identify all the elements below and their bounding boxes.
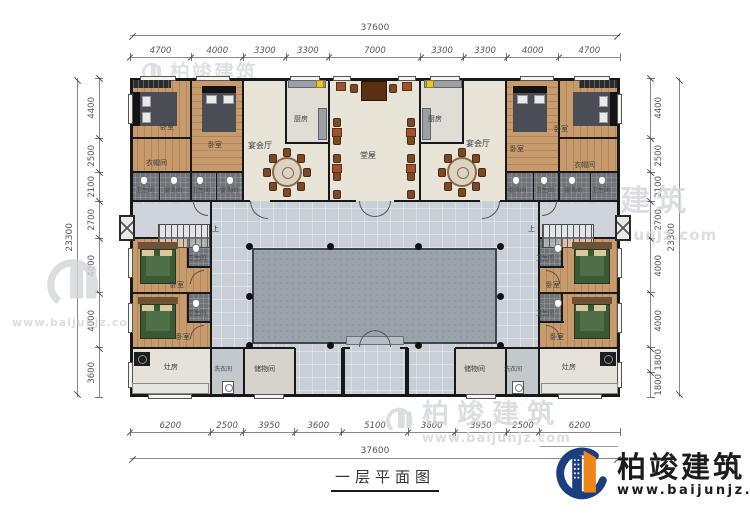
- dim-right-total-value: 23300: [667, 223, 677, 252]
- pillow: [599, 96, 608, 107]
- dining-chair: [269, 154, 277, 163]
- dim-segment-value: 6200: [160, 421, 182, 431]
- stove-counter: [541, 383, 618, 394]
- label-bedroom: 卧室: [170, 282, 184, 289]
- bed-headboard: [138, 297, 178, 304]
- dim-segment: 4000: [84, 293, 99, 348]
- dining-chair: [478, 168, 486, 177]
- toilet: [196, 176, 204, 185]
- pillow: [160, 250, 172, 256]
- hall-chair: [389, 84, 397, 93]
- toilet: [598, 176, 606, 185]
- hall-chair: [407, 136, 415, 145]
- floor-plan-sheet: 37600 4700400033003300700033003300400047…: [0, 0, 750, 530]
- label-bathroom: 卫生间: [192, 188, 210, 194]
- dim-segment-value: 4400: [654, 97, 664, 119]
- dining-chair: [458, 188, 466, 197]
- dining-chair: [438, 168, 446, 177]
- dim-segment-value: 7000: [364, 46, 386, 56]
- column-dot: [497, 342, 504, 349]
- dim-bottom-total-value: 37600: [361, 446, 390, 456]
- bed-headboard: [133, 92, 140, 126]
- hall-chair: [333, 154, 341, 163]
- wall: [533, 172, 534, 201]
- label-washroom: 盥洗间: [164, 188, 182, 194]
- dim-segment-value: 2100: [87, 176, 97, 198]
- label-bathroom: 卫生间: [136, 188, 154, 194]
- label-bedroom: 卧室: [160, 124, 174, 131]
- label-bathroom: 卫生间: [592, 188, 610, 194]
- dim-segment-value: 3300: [297, 46, 319, 56]
- label-bedroom: 卧室: [510, 146, 524, 153]
- wall: [130, 137, 191, 139]
- label-washroom: 盥洗间: [564, 188, 582, 194]
- wall: [285, 78, 287, 143]
- wall: [130, 292, 211, 294]
- dim-segment: 3950: [455, 415, 506, 432]
- wall: [454, 348, 456, 397]
- dim-segment-value: 4000: [87, 255, 97, 277]
- wall: [294, 348, 296, 397]
- pillow: [534, 95, 545, 104]
- column-dot: [246, 342, 253, 349]
- dining-chair: [269, 182, 277, 191]
- window-symbol: [617, 248, 622, 278]
- wall: [539, 266, 564, 268]
- bed: [513, 86, 547, 132]
- pillow: [206, 95, 217, 104]
- label-bathroom: 卫生间: [536, 311, 554, 317]
- dim-segment: 6200: [539, 415, 620, 432]
- window-symbol: [333, 76, 351, 81]
- dining-chair: [283, 148, 291, 157]
- dim-segment-value: 1800: [654, 374, 664, 396]
- dim-segment-value: 2500: [216, 421, 238, 431]
- label-stove-room: 灶房: [562, 364, 576, 371]
- label-stove-room: 灶房: [164, 364, 178, 371]
- wall: [216, 172, 217, 201]
- label-bedroom: 卧室: [176, 334, 190, 341]
- brand-logo: 柏竣建筑 www.baijunjz.com: [553, 447, 750, 503]
- pillow: [142, 305, 154, 311]
- pillow: [594, 250, 606, 256]
- wall: [590, 172, 591, 201]
- window-symbol: [617, 303, 622, 333]
- door-arc: [250, 201, 268, 219]
- sink-item: [426, 80, 434, 88]
- dim-segment: 2500: [507, 415, 540, 432]
- dim-right-total: 23300: [664, 78, 680, 397]
- dining-chair: [297, 154, 305, 163]
- pillow: [142, 250, 154, 256]
- dim-top-total-value: 37600: [361, 23, 390, 33]
- wall: [539, 321, 564, 323]
- toilet: [226, 176, 234, 185]
- toilet: [512, 176, 520, 185]
- pillow: [160, 305, 172, 311]
- window-symbol: [128, 303, 133, 333]
- wall: [242, 78, 244, 201]
- dim-segment: 2100: [84, 172, 99, 201]
- brand-url: www.baijunjz.com: [617, 483, 750, 498]
- dim-segment-value: 6200: [569, 421, 591, 431]
- toilet: [140, 176, 148, 185]
- pillow: [142, 96, 151, 107]
- wall: [538, 348, 540, 397]
- label-storage: 储物间: [254, 366, 275, 373]
- dim-segment-value: 1800: [654, 349, 664, 371]
- hall-chair: [333, 190, 341, 199]
- brand-name: 柏竣建筑: [617, 452, 750, 482]
- wall: [243, 348, 245, 397]
- bed: [202, 86, 236, 132]
- label-storage: 储物间: [464, 366, 485, 373]
- wall: [270, 200, 356, 202]
- dining-chair: [263, 168, 271, 177]
- label-bathroom: 卫生间: [188, 311, 206, 317]
- dim-segment: 4400: [84, 78, 99, 138]
- wall: [130, 347, 295, 349]
- bed-duvet-inner: [580, 256, 604, 276]
- dim-segment: 3300: [421, 40, 464, 57]
- pillow: [223, 95, 234, 104]
- dim-segment-value: 3950: [470, 421, 492, 431]
- dim-left-total-value: 23300: [65, 223, 75, 252]
- dim-segment-value: 2500: [87, 145, 97, 167]
- drawing-title: 一层平面图: [310, 466, 460, 487]
- hall-chair: [333, 136, 341, 145]
- column-dot: [246, 243, 253, 250]
- dining-chair: [297, 182, 305, 191]
- dim-segment: 2500: [84, 138, 99, 172]
- wall: [130, 200, 250, 202]
- bed-headboard: [610, 92, 617, 126]
- hall-side-table: [406, 128, 416, 137]
- wall: [187, 266, 212, 268]
- wall: [210, 348, 212, 397]
- door-arc: [482, 201, 500, 219]
- bed: [133, 92, 177, 126]
- dining-chair: [283, 188, 291, 197]
- dim-segment: 3600: [408, 415, 455, 432]
- dim-segment: 4000: [191, 40, 243, 57]
- label-washroom: 盥洗间: [508, 188, 526, 194]
- dim-segment-value: 4400: [87, 97, 97, 119]
- wall: [419, 78, 421, 201]
- dim-segment: 3300: [243, 40, 286, 57]
- dim-segment: 3300: [286, 40, 329, 57]
- column-dot: [327, 342, 334, 349]
- dim-segment-value: 4700: [150, 46, 172, 56]
- wall: [159, 172, 160, 201]
- dim-segment-value: 2500: [654, 145, 664, 167]
- stove: [600, 352, 616, 366]
- bed: [138, 242, 178, 286]
- window-symbol: [466, 394, 496, 399]
- altar-table: [361, 81, 387, 101]
- window-symbol: [520, 76, 554, 81]
- kitchen-counter: [318, 108, 327, 140]
- window-symbol: [128, 248, 133, 278]
- label-banquet-hall: 宴会厅: [466, 140, 490, 148]
- pillow: [594, 305, 606, 311]
- wall: [394, 200, 480, 202]
- dim-segment-value: 4000: [522, 46, 544, 56]
- dim-segment: 4000: [507, 40, 559, 57]
- washing-machine: [222, 381, 234, 394]
- hall-side-table: [332, 164, 342, 173]
- dim-segment-value: 2700: [87, 209, 97, 231]
- flue-symbol: [119, 215, 135, 241]
- window-symbol: [148, 394, 192, 399]
- hall-chair: [407, 118, 415, 127]
- washing-machine: [512, 381, 524, 394]
- dim-segment-value: 4000: [87, 310, 97, 332]
- wall: [341, 348, 345, 397]
- wall: [462, 78, 464, 143]
- dining-chair: [472, 182, 480, 191]
- dim-segment: 5100: [342, 415, 408, 432]
- bed: [138, 297, 178, 341]
- hall-side-table: [406, 164, 416, 173]
- dim-segment-value: 3300: [254, 46, 276, 56]
- dining-chair: [458, 148, 466, 157]
- column-dot: [327, 243, 334, 250]
- label-stairs-up: 上: [528, 226, 535, 233]
- hall-side-table: [336, 82, 346, 91]
- wall: [538, 201, 540, 348]
- toilet: [554, 299, 562, 308]
- wardrobe: [579, 80, 617, 88]
- wall: [506, 171, 620, 173]
- label-kitchen: 厨房: [294, 116, 308, 123]
- wall: [285, 142, 330, 144]
- dim-segment-value: 2500: [512, 421, 534, 431]
- dim-segment-value: 4000: [654, 255, 664, 277]
- label-main-hall: 堂屋: [360, 152, 376, 160]
- hall-side-table: [402, 82, 412, 91]
- label-banquet-hall: 宴会厅: [248, 142, 272, 150]
- wall: [187, 321, 212, 323]
- bed-duvet-inner: [146, 311, 170, 331]
- wall: [500, 200, 620, 202]
- dim-segment-value: 5100: [364, 421, 386, 431]
- bed-headboard: [202, 86, 236, 93]
- label-cloakroom: 衣帽间: [574, 162, 595, 169]
- pillow: [142, 112, 151, 123]
- toilet: [192, 299, 200, 308]
- hall-chair: [407, 154, 415, 163]
- bed-duvet-inner: [580, 311, 604, 331]
- label-bedroom: 卧室: [208, 142, 222, 149]
- window-symbol: [196, 76, 230, 81]
- dim-bottom-segments: 620025003950360051003600395025006200: [130, 415, 620, 433]
- label-bedroom: 卧室: [554, 126, 568, 133]
- dim-segment: 3950: [243, 415, 294, 432]
- dim-segment: 3600: [84, 348, 99, 397]
- brand-text: 柏竣建筑 www.baijunjz.com: [617, 452, 750, 497]
- wall: [561, 293, 563, 323]
- dim-segment-value: 4000: [654, 310, 664, 332]
- door-arc: [359, 201, 375, 217]
- dim-segment: 4700: [559, 40, 620, 57]
- hall-chair: [333, 172, 341, 181]
- dim-segment: 3300: [464, 40, 507, 57]
- dining-chair: [444, 182, 452, 191]
- dim-left-segments: 4400250021002700400040003600: [84, 78, 100, 397]
- wardrobe: [133, 80, 171, 88]
- bed: [573, 92, 617, 126]
- stove: [134, 352, 150, 366]
- label-laundry: 洗衣间: [214, 367, 232, 373]
- label-kitchen: 厨房: [428, 116, 442, 123]
- wall: [130, 394, 620, 397]
- label-bedroom: 卧室: [546, 282, 560, 289]
- column-dot: [246, 293, 253, 300]
- bed-headboard: [572, 242, 612, 249]
- dim-segment: 4700: [130, 40, 191, 57]
- dining-chair: [444, 154, 452, 163]
- pillow: [599, 112, 608, 123]
- dim-segment: 6200: [130, 415, 211, 432]
- label-washroom: 盥洗间: [220, 188, 238, 194]
- dim-segment-value: 4700: [579, 46, 601, 56]
- dim-segment-value: 3600: [421, 421, 443, 431]
- label-laundry: 洗衣间: [504, 367, 522, 373]
- label-bedroom: 卧室: [550, 334, 564, 341]
- sink-item: [316, 80, 324, 88]
- stove-counter: [132, 383, 209, 394]
- column-dot: [415, 243, 422, 250]
- toilet: [170, 176, 178, 185]
- column-dot: [497, 293, 504, 300]
- bed: [572, 242, 612, 286]
- dim-segment-value: 2700: [654, 209, 664, 231]
- pillow: [517, 95, 528, 104]
- hall-chair: [350, 84, 358, 93]
- bed-headboard: [513, 86, 547, 93]
- wall: [505, 78, 507, 201]
- title-underline: [331, 490, 439, 492]
- label-bathroom: 卫生间: [536, 256, 554, 262]
- hall-side-table: [332, 128, 342, 137]
- dim-segment-value: 4000: [206, 46, 228, 56]
- door-arc: [375, 201, 391, 217]
- bed-duvet-inner: [146, 256, 170, 276]
- wall: [539, 292, 620, 294]
- wall: [558, 78, 560, 201]
- hall-chair: [333, 118, 341, 127]
- pillow: [576, 305, 588, 311]
- wall: [328, 78, 330, 201]
- dim-segment: 4000: [84, 238, 99, 293]
- dim-segment-value: 2100: [654, 176, 664, 198]
- hall-chair: [407, 190, 415, 199]
- dim-bottom-total: 37600: [130, 439, 620, 459]
- window-symbol: [617, 94, 622, 124]
- flue-symbol: [615, 215, 631, 241]
- kitchen-counter: [422, 108, 431, 140]
- wall: [210, 201, 212, 348]
- dining-chair: [303, 168, 311, 177]
- dining-chair: [472, 154, 480, 163]
- dim-segment-value: 3600: [87, 362, 97, 384]
- dim-segment-value: 3600: [307, 421, 329, 431]
- window-symbol: [254, 394, 284, 399]
- dim-segment: 7000: [329, 40, 420, 57]
- bed-headboard: [572, 297, 612, 304]
- wall: [187, 293, 189, 323]
- dim-left-total: 23300: [62, 78, 78, 397]
- dim-segment-value: 3300: [474, 46, 496, 56]
- brand-logo-icon: [553, 447, 609, 503]
- dim-segment: 2700: [84, 201, 99, 238]
- label-bathroom: 卫生间: [536, 188, 554, 194]
- toilet: [568, 176, 576, 185]
- window-symbol: [398, 76, 416, 81]
- dim-segment-value: 3950: [258, 421, 280, 431]
- label-cloakroom: 衣帽间: [146, 160, 167, 167]
- bed-headboard: [138, 242, 178, 249]
- wall: [419, 142, 464, 144]
- drawing-title-block: 一层平面图: [310, 466, 460, 492]
- dim-segment-value: 3300: [431, 46, 453, 56]
- bathroom-floor: [539, 293, 562, 323]
- column-dot: [415, 342, 422, 349]
- bathroom-floor: [188, 293, 211, 323]
- dim-top-total: 37600: [130, 16, 620, 36]
- toilet: [540, 176, 548, 185]
- bed: [572, 297, 612, 341]
- wall: [130, 171, 243, 173]
- dim-segment: 2500: [211, 415, 244, 432]
- hall-chair: [407, 172, 415, 181]
- wall: [190, 78, 192, 201]
- label-stairs-up: 上: [212, 226, 219, 233]
- toilet: [192, 244, 200, 253]
- floor-plan-drawing: 卧室卧室衣帽间卫生间盥洗间卫生间盥洗间宴会厅厨房堂屋厨房宴会厅卧室卧室衣帽间盥洗…: [130, 78, 620, 397]
- column-dot: [497, 243, 504, 250]
- pillow: [576, 250, 588, 256]
- label-bathroom: 卫生间: [188, 256, 206, 262]
- wall: [405, 348, 409, 397]
- window-symbol: [558, 394, 602, 399]
- dim-segment: 3600: [295, 415, 342, 432]
- toilet: [554, 244, 562, 253]
- dim-top-segments: 470040003300330070003300330040004700: [130, 40, 620, 58]
- wall: [559, 137, 620, 139]
